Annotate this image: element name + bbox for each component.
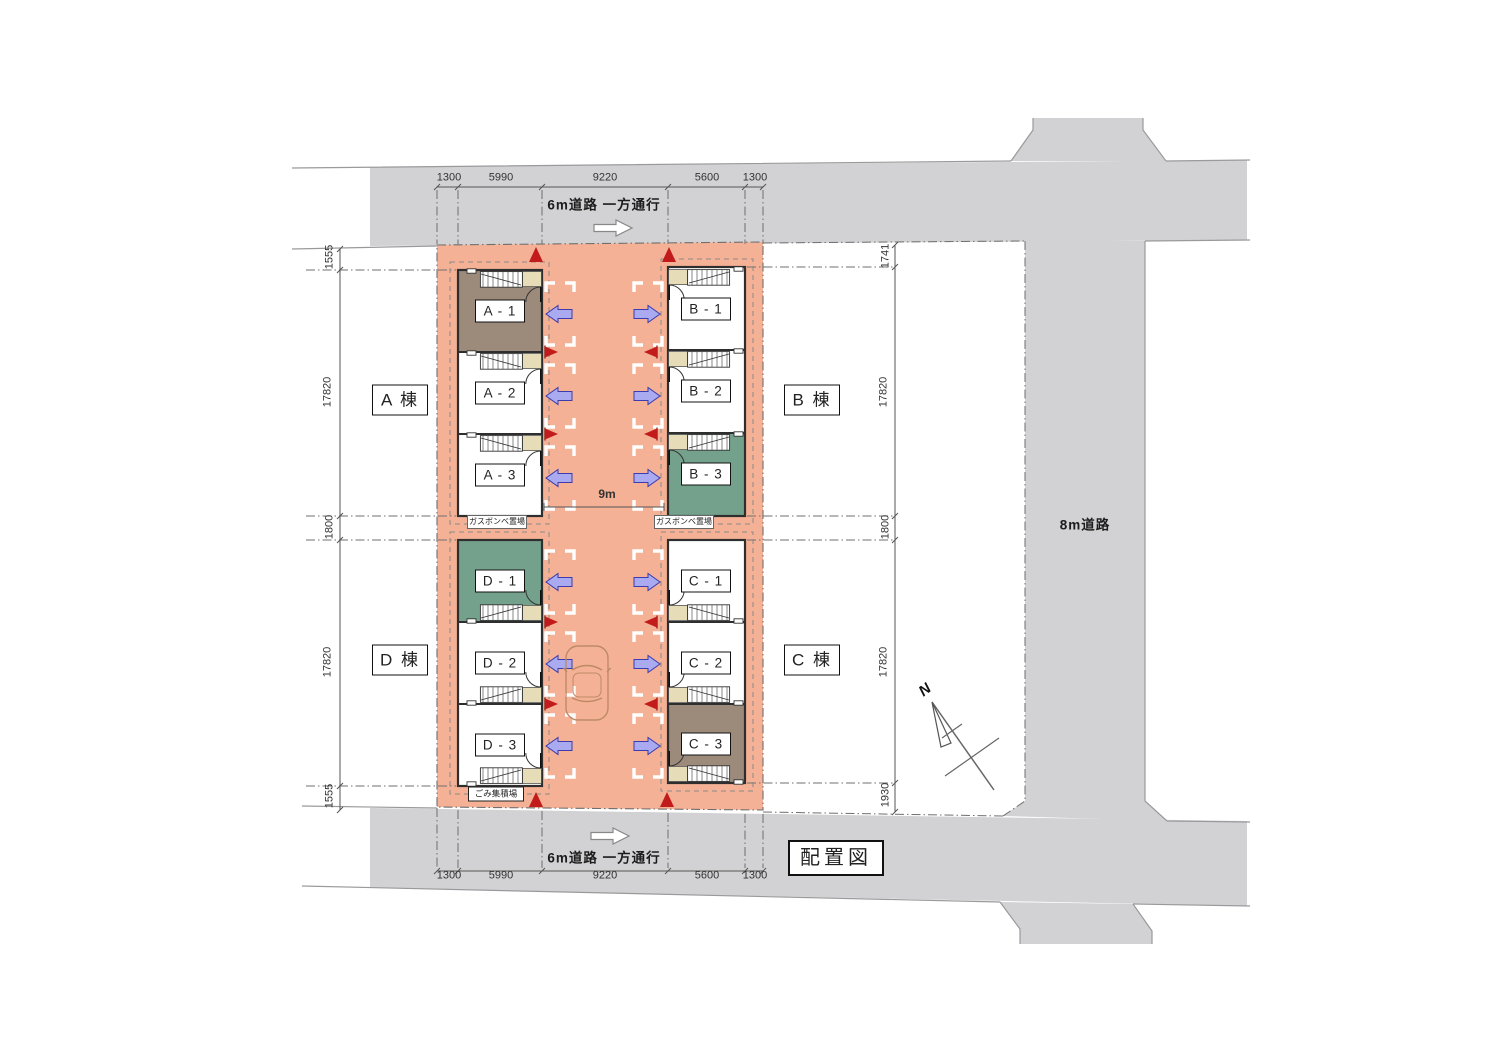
dim-bottom-0: 1300: [437, 871, 461, 882]
top-road-label: 6m道路 一方通行: [547, 198, 660, 212]
bottom-road-label: 6m道路 一方通行: [547, 851, 660, 865]
block-label-d: D 棟: [372, 645, 428, 676]
unit-label-b3: B - 3: [681, 463, 731, 486]
dim-left-2: 1800: [325, 515, 336, 539]
unit-label-b1: B - 1: [681, 298, 731, 321]
dim-top-2: 9220: [593, 173, 617, 184]
garbage-station-label: ごみ集積場: [468, 787, 524, 802]
site-plan-page: 1300 5990 9220 5600 1300 1300 5990 9220 …: [0, 0, 1500, 1061]
north-arrow-icon: [932, 702, 999, 790]
dim-right-0: 1741: [881, 244, 892, 268]
site-plan-drawing: [0, 0, 1500, 1061]
unit-label-c3: C - 3: [681, 733, 731, 756]
dim-right-1: 17820: [879, 377, 890, 408]
dim-right-3: 17820: [879, 647, 890, 678]
unit-label-c1: C - 1: [681, 570, 731, 593]
drawing-title: 配置図: [788, 840, 884, 876]
unit-label-d2: D - 2: [475, 652, 525, 675]
block-label-b: B 棟: [784, 385, 840, 416]
dim-top-1: 5990: [489, 173, 513, 184]
gas-storage-label-left: ガスボンベ置場: [467, 515, 527, 529]
unit-label-b2: B - 2: [681, 380, 731, 403]
dim-left-3: 17820: [323, 647, 334, 678]
dim-left-0: 1555: [325, 245, 336, 269]
unit-label-d3: D - 3: [475, 734, 525, 757]
dim-top-3: 5600: [695, 173, 719, 184]
dim-top-4: 1300: [743, 173, 767, 184]
right-road-label: 8m道路: [1060, 518, 1111, 532]
dim-top-0: 1300: [437, 173, 461, 184]
dim-bottom-2: 9220: [593, 871, 617, 882]
dim-bottom-4: 1300: [743, 871, 767, 882]
dim-right-4: 1930: [881, 783, 892, 807]
dim-right-2: 1800: [881, 515, 892, 539]
dim-bottom-1: 5990: [489, 871, 513, 882]
unit-label-d1: D - 1: [475, 570, 525, 593]
unit-label-a1: A - 1: [475, 300, 525, 323]
drive-width-label: 9m: [598, 488, 615, 500]
dim-left-4: 1555: [325, 784, 336, 808]
unit-label-a3: A - 3: [475, 464, 525, 487]
unit-label-a2: A - 2: [475, 382, 525, 405]
dim-left-1: 17820: [323, 377, 334, 408]
unit-label-c2: C - 2: [681, 652, 731, 675]
gas-storage-label-right: ガスボンベ置場: [654, 515, 714, 529]
block-label-c: C 棟: [784, 645, 840, 676]
block-label-a: A 棟: [372, 385, 428, 416]
dim-bottom-3: 5600: [695, 871, 719, 882]
